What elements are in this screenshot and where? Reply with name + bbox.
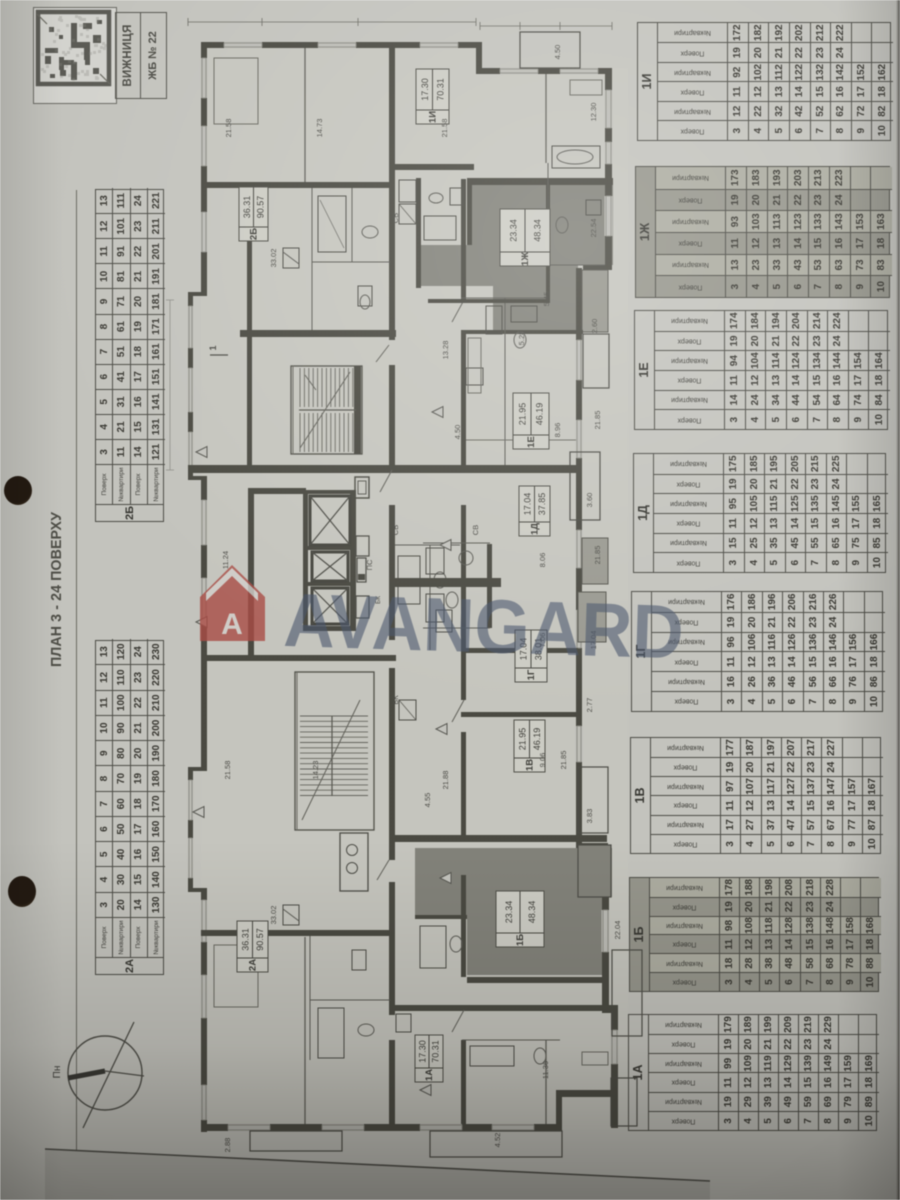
svg-text:AVANGARD: AVANGARD <box>282 578 684 676</box>
svg-text:A: A <box>221 608 243 641</box>
